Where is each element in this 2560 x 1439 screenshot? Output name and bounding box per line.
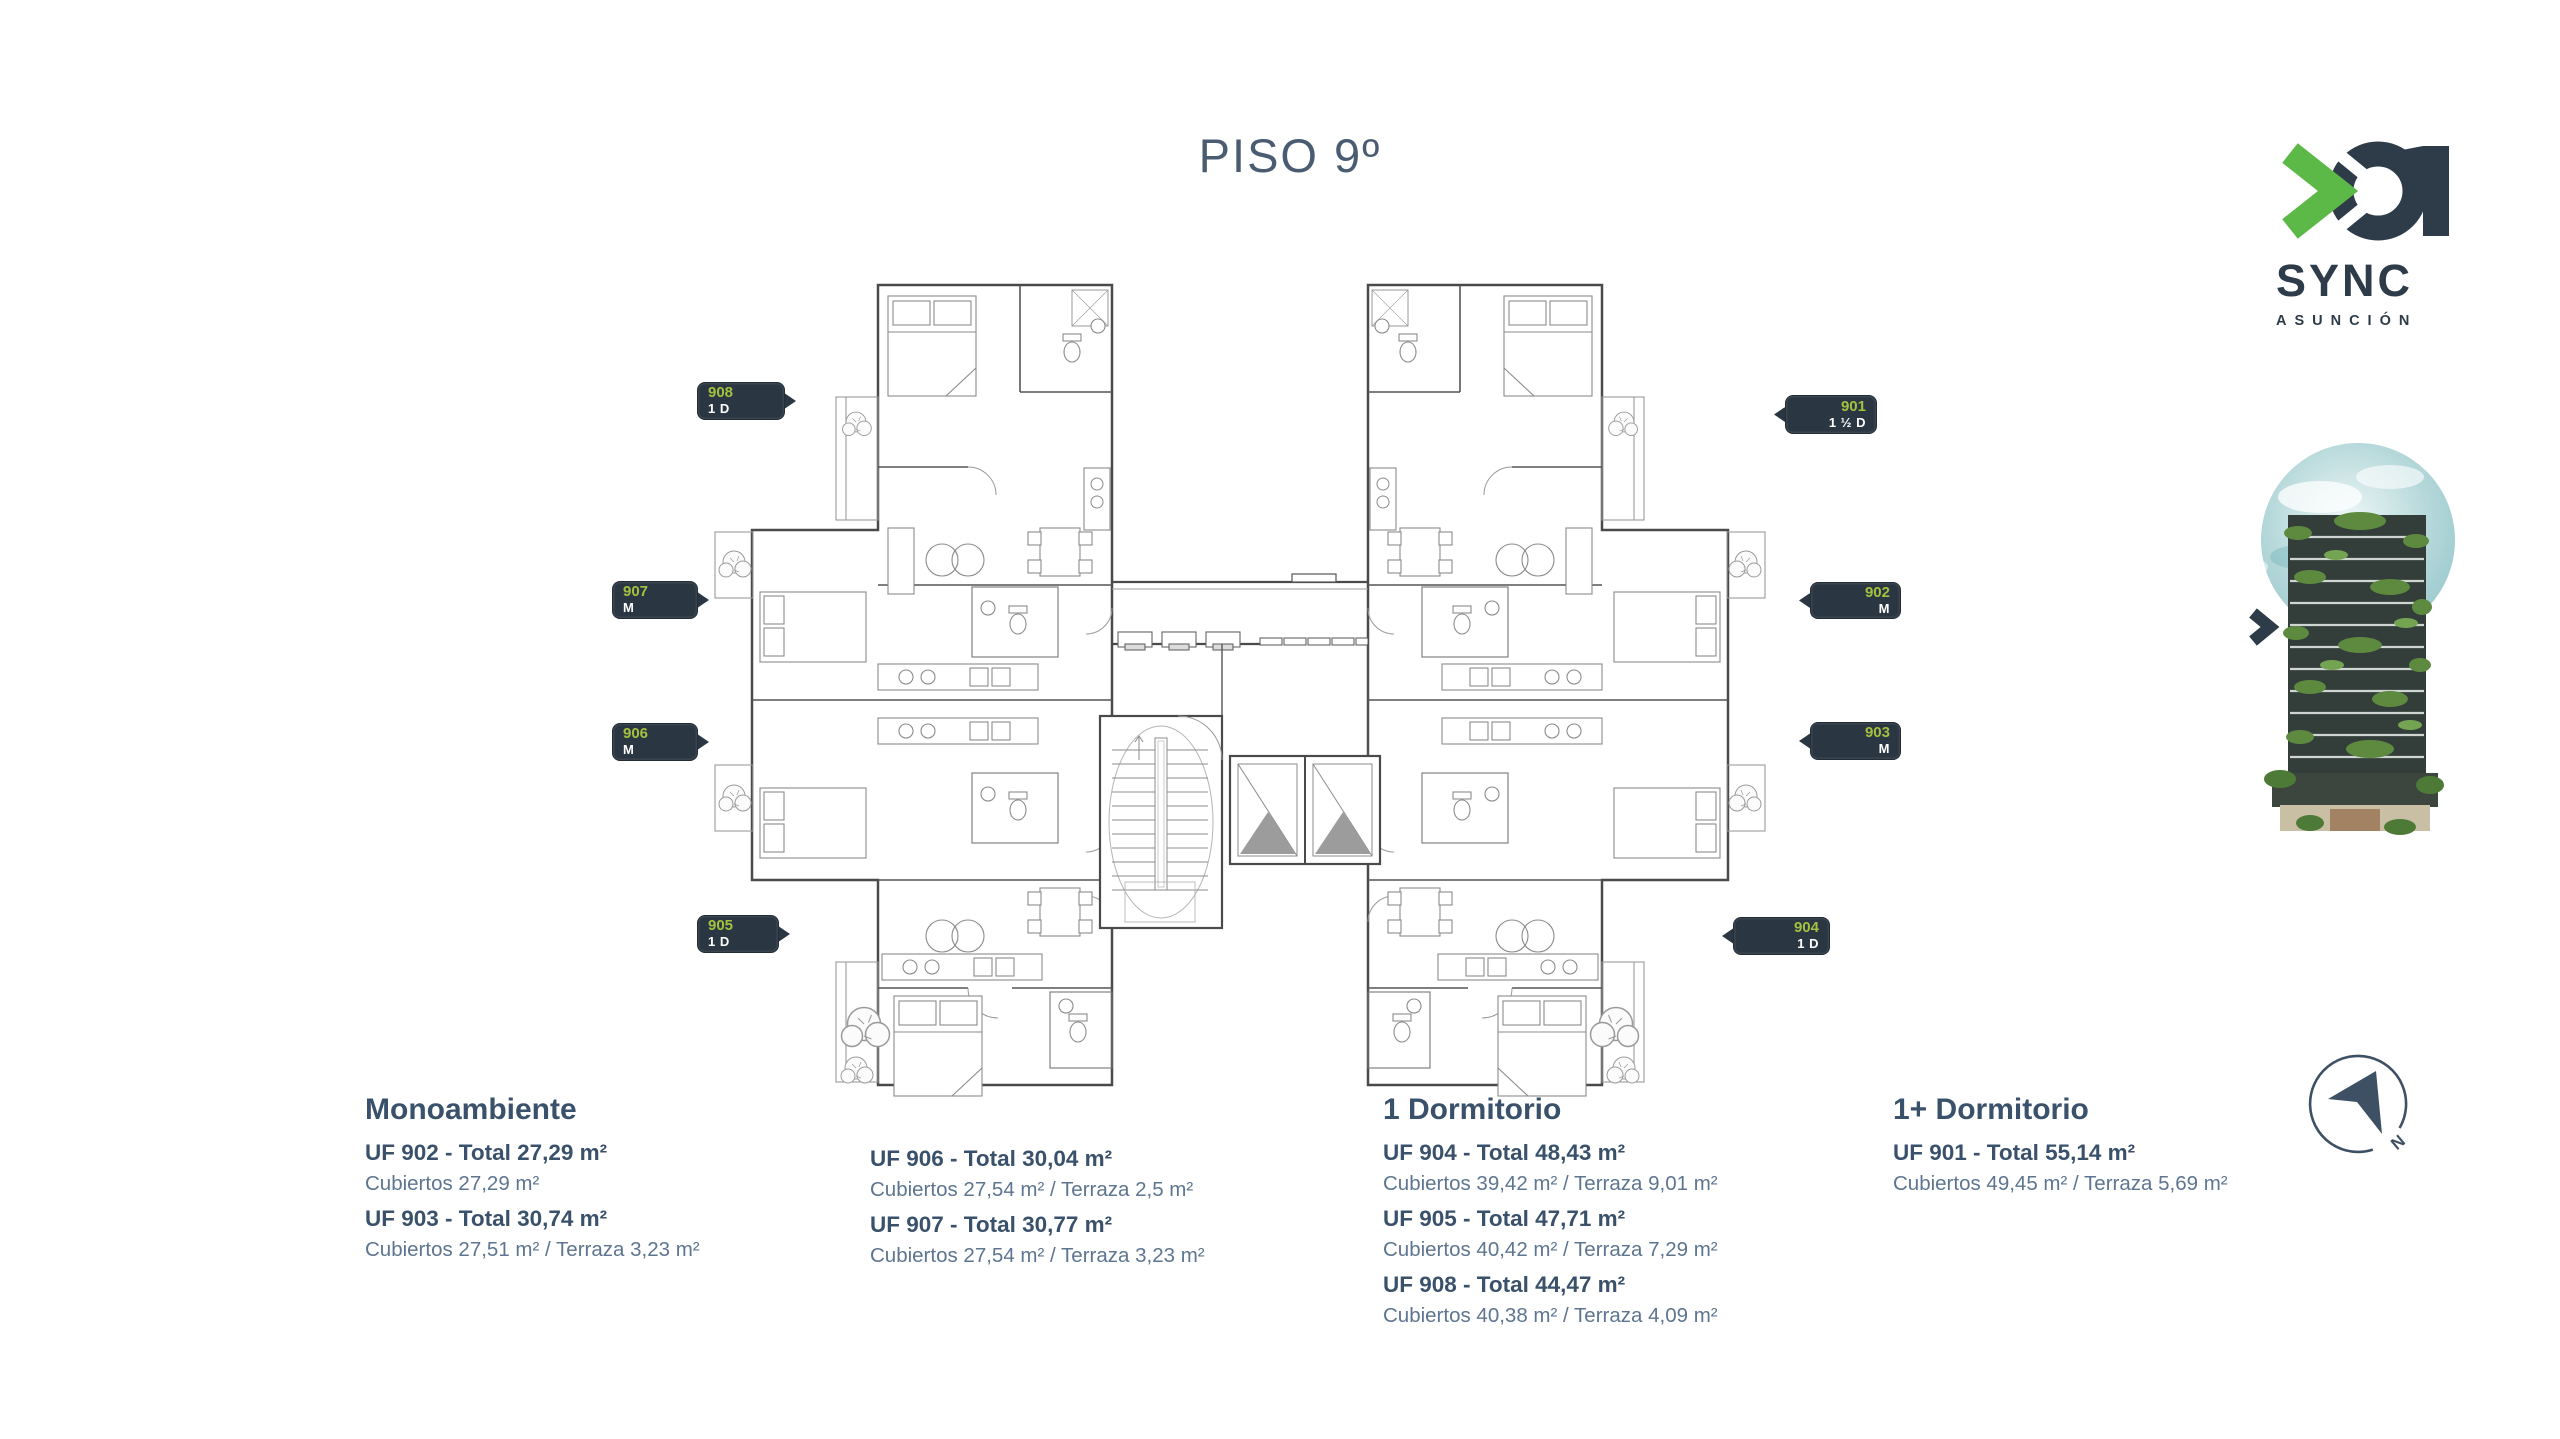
page: PISO 9º	[0, 0, 2560, 1439]
unit-tag-number: 908	[708, 385, 774, 402]
unit-tag-number: 902	[1865, 585, 1890, 602]
unit-tag-type: 1 D	[708, 935, 768, 950]
unit-tag-number: 907	[623, 584, 687, 601]
plan-core	[1100, 716, 1380, 928]
logo-name: SYNC	[2276, 255, 2456, 307]
legend-heading: Monoambiente	[365, 1093, 835, 1127]
unit-tag-type: 1 D	[1797, 937, 1819, 952]
unit-tag-type: M	[1879, 602, 1890, 617]
legend-unit: UF 902 - Total 27,29 m² Cubiertos 27,29 …	[365, 1137, 835, 1199]
logo: SYNC ASUNCIÓN	[2276, 136, 2456, 329]
unit-detail: Cubiertos 27,29 m²	[365, 1169, 835, 1199]
unit-title: UF 906 - Total 30,04 m²	[870, 1143, 1340, 1175]
unit-detail: Cubiertos 27,51 m² / Terraza 3,23 m²	[365, 1235, 835, 1265]
unit-tag-904[interactable]: 904 1 D	[1734, 918, 1829, 954]
unit-title: UF 905 - Total 47,71 m²	[1383, 1203, 1853, 1235]
legend-heading: 1+ Dormitorio	[1893, 1093, 2363, 1127]
legend-col-monoambiente: Monoambiente UF 902 - Total 27,29 m² Cub…	[365, 1093, 835, 1265]
unit-detail: Cubiertos 40,38 m² / Terraza 4,09 m²	[1383, 1301, 1853, 1331]
unit-title: UF 904 - Total 48,43 m²	[1383, 1137, 1853, 1169]
floor-plan	[620, 230, 1790, 1110]
logo-city: ASUNCIÓN	[2276, 313, 2456, 329]
legend-unit: UF 905 - Total 47,71 m² Cubiertos 40,42 …	[1383, 1203, 1853, 1265]
unit-title: UF 901 - Total 55,14 m²	[1893, 1137, 2363, 1169]
unit-tag-number: 906	[623, 726, 687, 743]
page-title: PISO 9º	[1050, 128, 1530, 183]
unit-tag-type: M	[1879, 742, 1890, 757]
unit-detail: Cubiertos 49,45 m² / Terraza 5,69 m²	[1893, 1169, 2363, 1199]
unit-tag-901[interactable]: 901 1 ½ D	[1786, 396, 1876, 433]
unit-tag-907[interactable]: 907 M	[613, 582, 697, 618]
unit-tag-type: M	[623, 601, 687, 616]
unit-tag-number: 905	[708, 918, 768, 935]
compass-label: N	[2387, 1131, 2409, 1153]
unit-title: UF 903 - Total 30,74 m²	[365, 1203, 835, 1235]
legend-unit: UF 901 - Total 55,14 m² Cubiertos 49,45 …	[1893, 1137, 2363, 1199]
unit-tag-type: 1 ½ D	[1829, 416, 1866, 431]
unit-tag-number: 904	[1794, 920, 1819, 937]
unit-title: UF 908 - Total 44,47 m²	[1383, 1269, 1853, 1301]
unit-tag-905[interactable]: 905 1 D	[698, 916, 778, 952]
legend-unit: UF 903 - Total 30,74 m² Cubiertos 27,51 …	[365, 1203, 835, 1265]
unit-tag-number: 903	[1865, 725, 1890, 742]
unit-detail: Cubiertos 27,54 m² / Terraza 3,23 m²	[870, 1241, 1340, 1271]
chevron-right-icon[interactable]	[2246, 606, 2282, 648]
logo-mark	[2276, 136, 2456, 248]
legend-col-1plus-dormitorio: 1+ Dormitorio UF 901 - Total 55,14 m² Cu…	[1893, 1093, 2363, 1199]
unit-tag-908[interactable]: 908 1 D	[698, 383, 784, 419]
legend-col-1-dormitorio: 1 Dormitorio UF 904 - Total 48,43 m² Cub…	[1383, 1093, 1853, 1331]
unit-tag-906[interactable]: 906 M	[613, 724, 697, 760]
unit-title: UF 902 - Total 27,29 m²	[365, 1137, 835, 1169]
legend-unit: UF 908 - Total 44,47 m² Cubiertos 40,38 …	[1383, 1269, 1853, 1331]
legend-unit: UF 906 - Total 30,04 m² Cubiertos 27,54 …	[870, 1143, 1340, 1205]
legend-unit: UF 904 - Total 48,43 m² Cubiertos 39,42 …	[1383, 1137, 1853, 1199]
legend-unit: UF 907 - Total 30,77 m² Cubiertos 27,54 …	[870, 1209, 1340, 1271]
unit-tag-type: 1 D	[708, 402, 774, 417]
unit-title: UF 907 - Total 30,77 m²	[870, 1209, 1340, 1241]
legend-heading: 1 Dormitorio	[1383, 1093, 1853, 1127]
unit-detail: Cubiertos 40,42 m² / Terraza 7,29 m²	[1383, 1235, 1853, 1265]
unit-tag-number: 901	[1841, 399, 1866, 416]
unit-detail: Cubiertos 27,54 m² / Terraza 2,5 m²	[870, 1175, 1340, 1205]
unit-tag-type: M	[623, 743, 687, 758]
unit-detail: Cubiertos 39,42 m² / Terraza 9,01 m²	[1383, 1169, 1853, 1199]
unit-tag-902[interactable]: 902 M	[1811, 583, 1900, 618]
plan-wing-right	[1368, 285, 1765, 1096]
unit-tag-903[interactable]: 903 M	[1811, 723, 1900, 759]
legend-col-monoambiente-2: UF 906 - Total 30,04 m² Cubiertos 27,54 …	[870, 1139, 1340, 1271]
